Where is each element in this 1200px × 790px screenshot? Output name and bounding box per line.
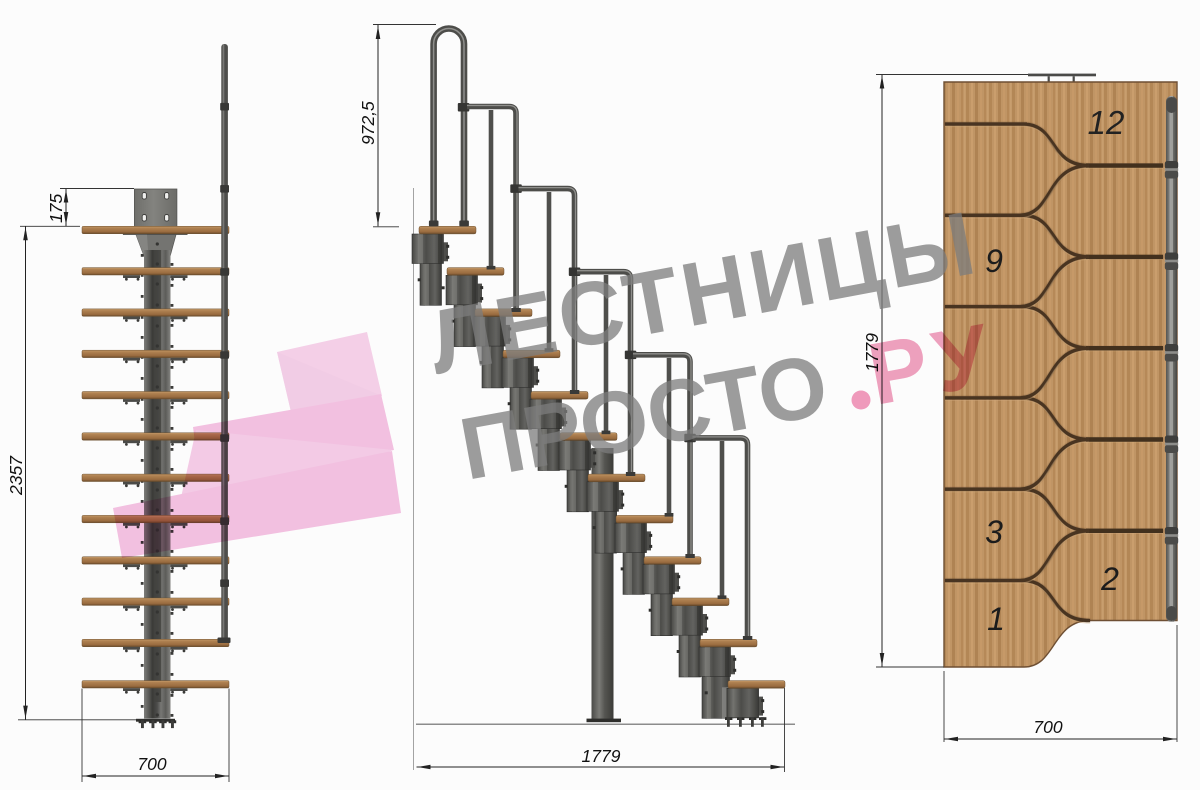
svg-text:972,5: 972,5 — [358, 101, 378, 145]
svg-text:12: 12 — [1088, 104, 1125, 141]
svg-text:175: 175 — [46, 194, 66, 223]
svg-text:700: 700 — [1033, 717, 1062, 737]
svg-text:1779: 1779 — [582, 746, 621, 766]
svg-text:3: 3 — [985, 514, 1003, 550]
svg-text:2357: 2357 — [6, 455, 26, 496]
svg-text:9: 9 — [985, 243, 1003, 279]
svg-text:2: 2 — [1100, 561, 1119, 597]
svg-text:1: 1 — [987, 601, 1005, 637]
svg-text:700: 700 — [137, 754, 166, 774]
